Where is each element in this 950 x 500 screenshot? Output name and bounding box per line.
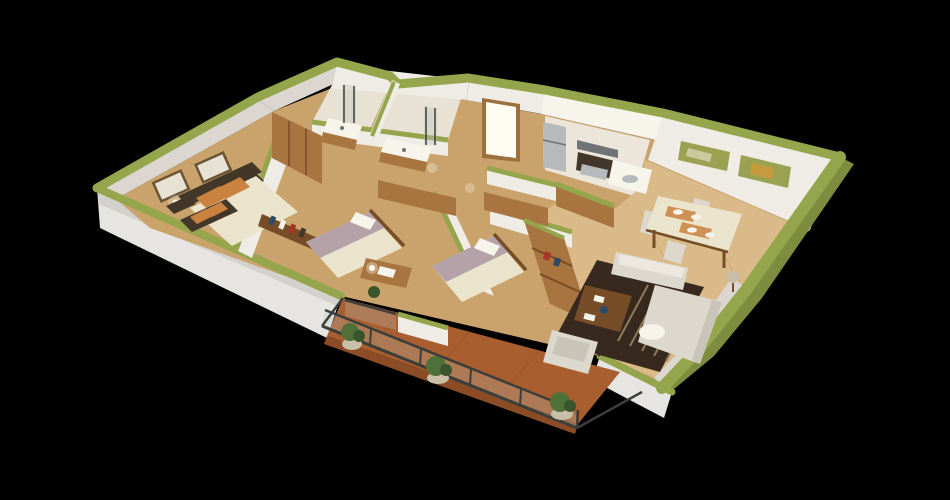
- plant-foliage-1b: [353, 330, 365, 342]
- hallway-light-glow-1: [427, 163, 437, 173]
- balcony-post-corner: [577, 410, 578, 428]
- living-sofa-ottoman: [639, 324, 665, 340]
- balcony-post-3: [470, 369, 471, 385]
- balcony-post-1: [370, 329, 371, 345]
- dining-floor-lamp: [727, 271, 739, 283]
- bedroom2-desk-lamp: [369, 265, 375, 271]
- bath2-faucet: [402, 148, 406, 152]
- balcony-post-2: [420, 349, 421, 365]
- dining-plate-2: [691, 214, 701, 219]
- kitchen-fridge: [543, 122, 566, 172]
- plant-foliage-2b: [440, 364, 452, 376]
- plant-indoor-small: [368, 286, 380, 298]
- dining-plate-4: [705, 232, 715, 237]
- bath1-faucet: [340, 126, 344, 130]
- plant-foliage-3b: [564, 400, 576, 412]
- entry-door-glow: [486, 102, 516, 158]
- floorplan-3d-render: [0, 0, 950, 500]
- dining-plate-3: [687, 227, 697, 232]
- dining-plate-1: [673, 209, 683, 214]
- kitchen-sink-basin: [622, 175, 638, 183]
- hallway-light-glow-2: [465, 183, 475, 193]
- balcony-post-4: [520, 389, 521, 405]
- coffee-table-deco-bowl: [600, 306, 608, 314]
